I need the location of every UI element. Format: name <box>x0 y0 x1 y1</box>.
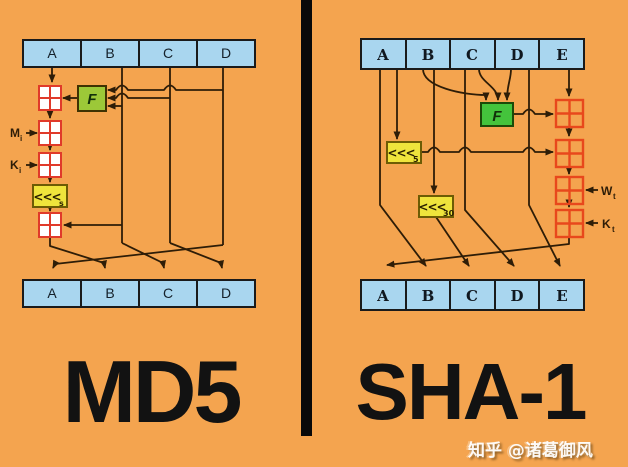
sha1-title: SHA-1 <box>313 344 628 439</box>
md5-adder-1 <box>39 86 61 110</box>
shift-label: <<< <box>418 200 445 214</box>
svg-text:i: i <box>19 166 21 175</box>
panel-divider <box>301 0 312 436</box>
svg-text:t: t <box>612 225 615 234</box>
sha1-shift5-box: <<< 5 <box>387 142 421 164</box>
md5-sha1-comparison-diagram: A B C D A B C D F <box>0 0 628 467</box>
shift-label: <<< <box>387 146 414 160</box>
register-letter: D <box>510 46 523 64</box>
md5-top-register: A B C D <box>23 40 255 67</box>
register-letter: B <box>422 46 435 64</box>
md5-adder-4 <box>39 213 61 237</box>
register-letter: D <box>221 285 231 301</box>
shift-amount: 5 <box>413 155 419 164</box>
svg-text:M: M <box>10 126 20 140</box>
svg-text:t: t <box>613 192 616 201</box>
sha1-adder-2 <box>556 140 583 167</box>
md5-adder-2 <box>39 121 61 145</box>
f-label: F <box>492 108 502 125</box>
md5-f-box: F <box>78 86 106 111</box>
sha1-f-box: F <box>481 103 513 126</box>
sha1-adder-1 <box>556 100 583 127</box>
register-letter: C <box>163 45 173 61</box>
sha1-panel: A B C D E A B C D E F <<< 5 <box>313 0 628 330</box>
register-letter: A <box>376 46 389 64</box>
md5-bottom-register: A B C D <box>23 280 255 307</box>
register-letter: D <box>221 45 231 61</box>
shift-label: <<< <box>33 190 60 204</box>
register-letter: B <box>105 285 114 301</box>
shift-amount: 30 <box>443 209 455 218</box>
sha1-adder-4 <box>556 210 583 237</box>
register-letter: E <box>556 46 567 64</box>
register-letter: A <box>47 45 57 61</box>
f-label: F <box>87 91 97 108</box>
register-letter: C <box>466 287 478 305</box>
md5-message-word-label: M i <box>10 126 22 143</box>
md5-panel: A B C D A B C D F <box>0 0 302 330</box>
sha1-word-label: W t <box>601 184 616 201</box>
zhihu-watermark: 知乎 @诸葛御风 <box>468 436 626 461</box>
sha1-bottom-register: A B C D E <box>361 280 584 310</box>
register-letter: A <box>376 287 389 305</box>
md5-constant-label: K i <box>10 158 21 175</box>
md5-title: MD5 <box>0 344 302 439</box>
svg-text:K: K <box>10 158 19 172</box>
svg-text:K: K <box>602 217 611 231</box>
sha1-top-register: A B C D E <box>361 39 584 69</box>
register-letter: C <box>466 46 478 64</box>
register-letter: B <box>422 287 435 305</box>
register-letter: C <box>163 285 173 301</box>
register-letter: D <box>510 287 523 305</box>
md5-shift-box: <<< s <box>33 185 67 208</box>
register-letter: A <box>47 285 57 301</box>
register-letter: E <box>556 287 567 305</box>
svg-text:i: i <box>20 134 22 143</box>
sha1-adder-3 <box>556 177 583 204</box>
register-letter: B <box>105 45 114 61</box>
md5-adder-3 <box>39 153 61 177</box>
svg-text:W: W <box>601 184 613 198</box>
sha1-constant-label: K t <box>602 217 615 234</box>
shift-amount: s <box>59 199 64 208</box>
sha1-shift30-box: <<< 30 <box>418 196 454 218</box>
